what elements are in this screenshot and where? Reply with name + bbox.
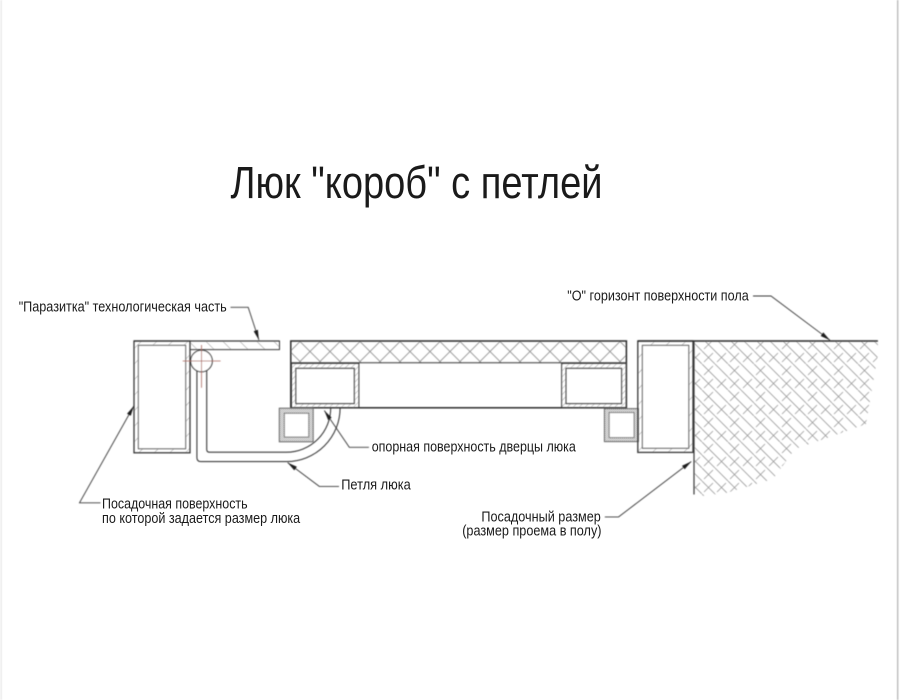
- svg-text:"Паразитка" технологическая ча: "Паразитка" технологическая часть: [19, 299, 227, 316]
- svg-text:"О" горизонт поверхности пола: "О" горизонт поверхности пола: [567, 288, 749, 305]
- svg-text:опорная поверхность дверцы люк: опорная поверхность дверцы люка: [372, 439, 577, 456]
- svg-text:Люк "короб" с петлей: Люк "короб" с петлей: [231, 157, 603, 208]
- svg-text:(размер проема в полу): (размер проема в полу): [462, 523, 601, 540]
- svg-text:по которой задается размер люк: по которой задается размер люка: [102, 510, 301, 527]
- svg-text:Петля люка: Петля люка: [341, 477, 411, 494]
